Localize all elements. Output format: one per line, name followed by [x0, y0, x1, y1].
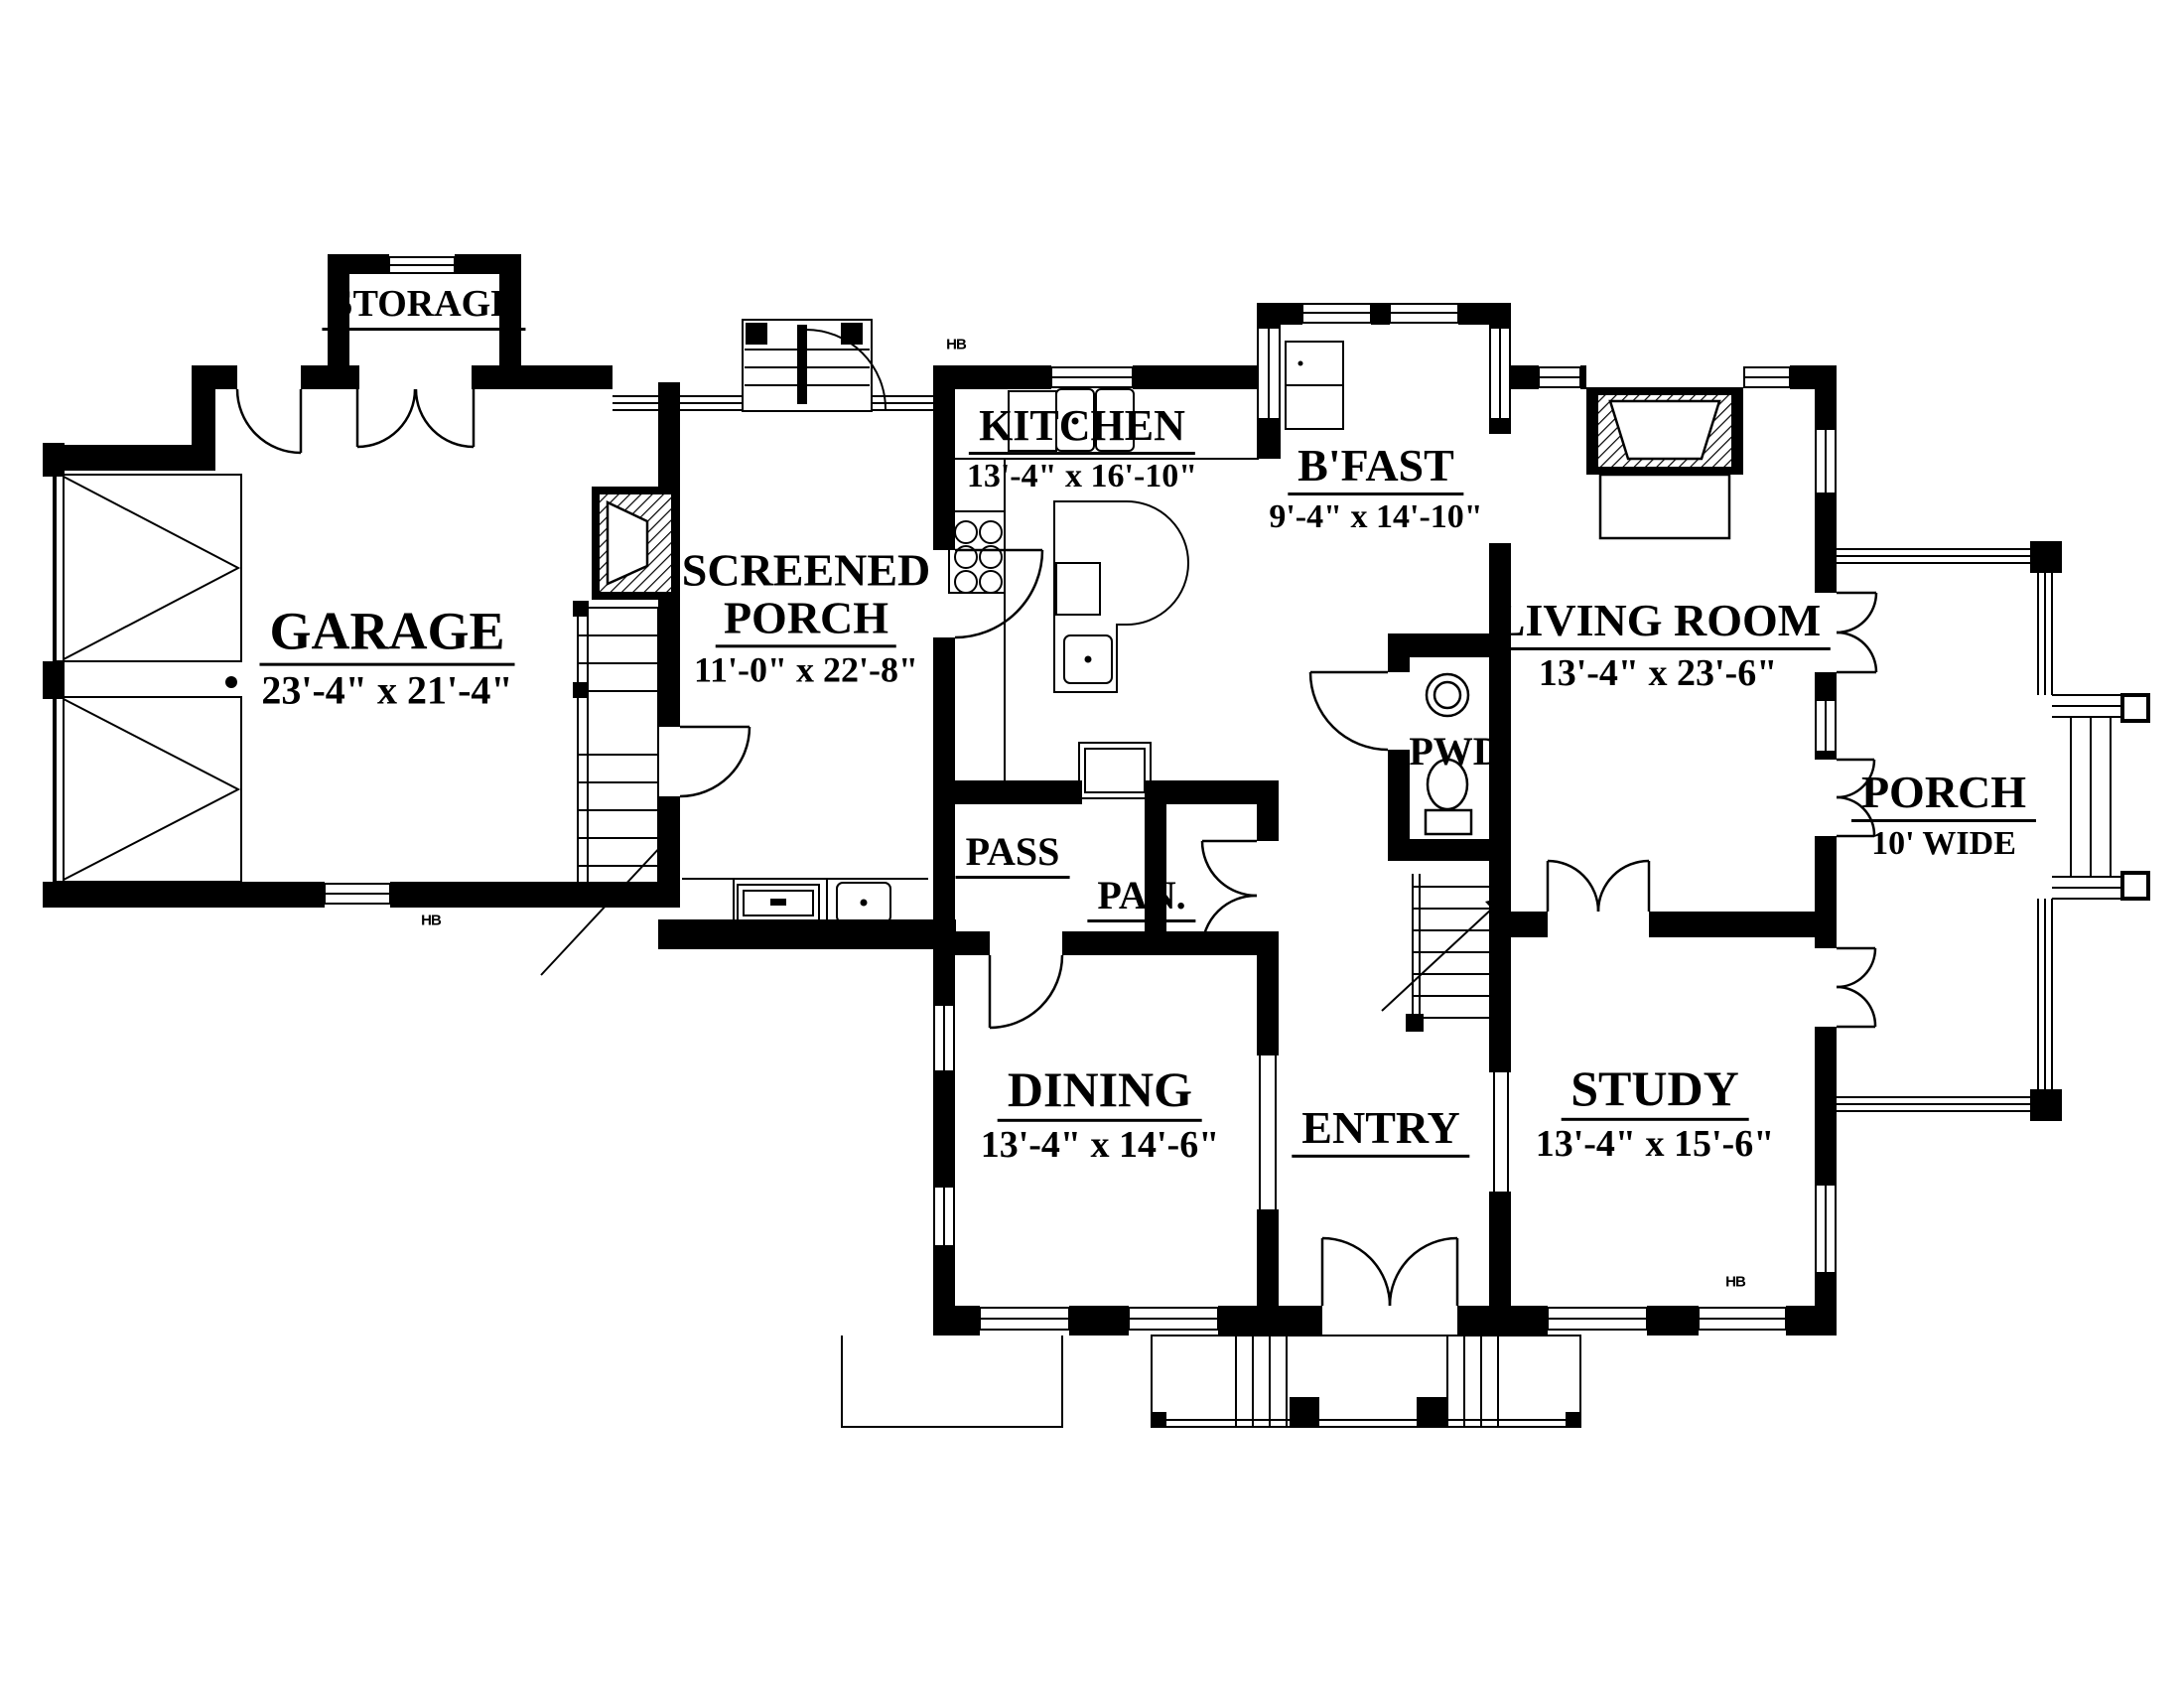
room-label-study: STUDY 13'-4" x 15'-6"	[1536, 1062, 1775, 1164]
room-label-bfast: B'FAST 9'-4" x 14'-10"	[1269, 442, 1482, 535]
screened-porch-fireplace	[592, 487, 679, 600]
living-room-fireplace	[1586, 387, 1743, 538]
room-dims: 13'-4" x 23'-6"	[1485, 654, 1831, 694]
step-newel	[2122, 695, 2148, 721]
room-dims: 23'-4" x 21'-4"	[259, 669, 514, 711]
step-newel	[2122, 873, 2148, 899]
room-label-kitchen: KITCHEN 13'-4" x 16'-10"	[967, 403, 1197, 494]
room-dims: 13'-4" x 15'-6"	[1536, 1124, 1775, 1164]
room-name: LIVING ROOM	[1485, 597, 1831, 650]
room-label-porch: PORCH 10' WIDE	[1851, 769, 2036, 862]
room-dims: 9'-4" x 14'-10"	[1269, 499, 1482, 535]
floor-plan-page: { "colors": { "ink": "#000000", "paper":…	[0, 0, 2184, 1688]
porch-column-ne	[2031, 542, 2061, 572]
room-name: B'FAST	[1288, 442, 1464, 495]
room-label-pass: PASS	[956, 831, 1070, 879]
room-name: PASS	[956, 831, 1070, 879]
room-label-living-room: LIVING ROOM 13'-4" x 23'-6"	[1485, 597, 1831, 694]
porch-column-se	[2031, 1090, 2061, 1120]
stoop-column	[1291, 1398, 1318, 1426]
room-label-pantry: PAN.	[1087, 875, 1195, 922]
room-name: ENTRY	[1292, 1104, 1469, 1158]
room-name: DINING	[998, 1063, 1202, 1122]
room-label-screened-porch: SCREENED PORCH 11'-0" x 22'-8"	[682, 546, 931, 688]
room-name: PORCH	[1851, 769, 2036, 822]
room-name-line2: PORCH	[716, 595, 896, 647]
room-dims: 10' WIDE	[1851, 826, 2036, 862]
garage-column-dot	[225, 676, 237, 688]
hose-bib-annotation: HB	[1725, 1274, 1745, 1291]
room-label-pwd: PWD	[1409, 731, 1501, 773]
room-label-entry: ENTRY	[1292, 1104, 1469, 1158]
room-name: STORAGE	[322, 285, 525, 331]
hose-bib-annotation: HB	[421, 913, 441, 929]
hose-bib-annotation: HB	[946, 337, 966, 353]
stoop-column	[1418, 1398, 1445, 1426]
room-dims: 13'-4" x 16'-10"	[967, 459, 1197, 494]
room-label-storage: STORAGE	[322, 285, 525, 331]
room-name: PAN.	[1087, 875, 1195, 922]
room-name-line1: SCREENED	[682, 544, 931, 595]
room-name: STUDY	[1561, 1062, 1748, 1121]
hearth	[1600, 475, 1729, 538]
room-dims: 13'-4" x 14'-6"	[981, 1125, 1220, 1165]
room-dims: 11'-0" x 22'-8"	[682, 651, 931, 689]
room-name: GARAGE	[259, 604, 514, 666]
room-label-garage: GARAGE 23'-4" x 21'-4"	[259, 604, 514, 712]
room-label-dining: DINING 13'-4" x 14'-6"	[981, 1063, 1220, 1165]
room-name: KITCHEN	[969, 403, 1195, 455]
room-name: PWD	[1409, 731, 1501, 773]
